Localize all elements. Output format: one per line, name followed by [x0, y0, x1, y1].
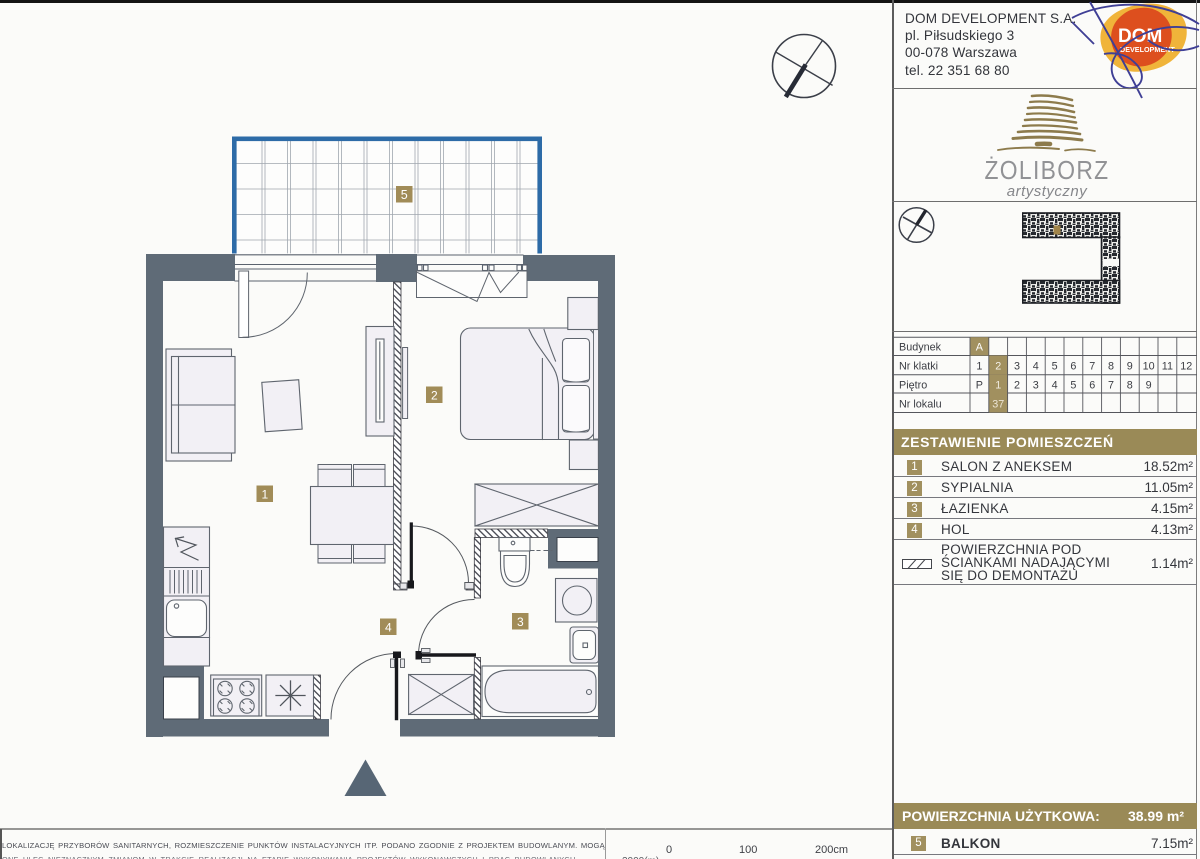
- svg-text:3: 3: [517, 615, 524, 629]
- svg-text:Nr lokalu: Nr lokalu: [899, 399, 942, 411]
- svg-text:11: 11: [1162, 361, 1173, 373]
- svg-text:5: 5: [1052, 361, 1058, 373]
- svg-text:8: 8: [1127, 379, 1133, 391]
- svg-text:A: A: [976, 342, 984, 354]
- svg-text:9: 9: [1146, 379, 1152, 391]
- svg-text:1: 1: [261, 487, 268, 501]
- svg-text:2: 2: [995, 361, 1001, 373]
- svg-text:8: 8: [1108, 361, 1114, 373]
- svg-text:Budynek: Budynek: [899, 342, 942, 354]
- svg-text:3: 3: [1033, 379, 1039, 391]
- svg-text:2: 2: [431, 388, 438, 402]
- svg-text:7: 7: [1108, 379, 1114, 391]
- svg-text:3: 3: [1014, 361, 1020, 373]
- svg-text:4: 4: [1033, 361, 1039, 373]
- svg-text:10: 10: [1143, 361, 1155, 373]
- svg-text:7: 7: [1089, 361, 1095, 373]
- svg-text:37: 37: [992, 399, 1004, 411]
- svg-text:1: 1: [995, 379, 1001, 391]
- svg-text:Piętro: Piętro: [899, 379, 927, 391]
- svg-text:12: 12: [1180, 361, 1192, 373]
- svg-text:Nr klatki: Nr klatki: [899, 361, 938, 373]
- svg-text:6: 6: [1089, 379, 1095, 391]
- svg-text:5: 5: [1070, 379, 1076, 391]
- svg-text:6: 6: [1070, 361, 1076, 373]
- svg-text:4: 4: [1052, 379, 1058, 391]
- svg-text:P: P: [976, 379, 983, 391]
- svg-text:2: 2: [1014, 379, 1020, 391]
- svg-text:4: 4: [385, 620, 392, 634]
- svg-text:9: 9: [1127, 361, 1133, 373]
- svg-text:1: 1: [976, 361, 982, 373]
- svg-text:5: 5: [401, 188, 408, 202]
